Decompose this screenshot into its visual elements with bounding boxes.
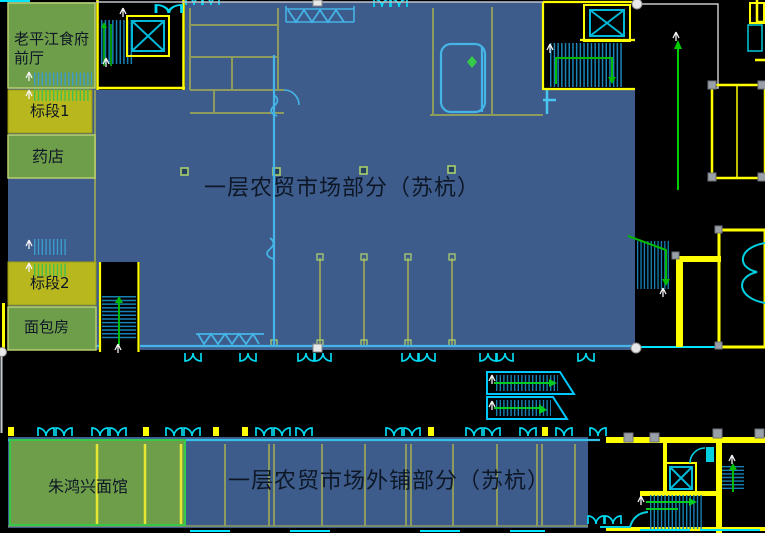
pharmacy-label[interactable]: 药店 bbox=[32, 147, 64, 167]
section2-label[interactable]: 标段2 bbox=[30, 274, 70, 293]
outer-shops-label[interactable]: 一层农贸市场外铺部分（苏杭） bbox=[228, 468, 550, 496]
stairwell-left-mid bbox=[99, 262, 140, 353]
cad-drawing-layer bbox=[0, 0, 765, 533]
stairwell-top-left bbox=[96, 0, 185, 90]
section1-label[interactable]: 标段1 bbox=[30, 102, 70, 121]
floor-plan-canvas: 老平江食府 前厅 标段1 药店 标段2 面包房 一层农贸市场部分（苏杭） 一层农… bbox=[0, 0, 765, 533]
stairwell-top-right bbox=[543, 2, 635, 90]
front-hall-label[interactable]: 老平江食府 前厅 bbox=[14, 30, 89, 68]
noodle-shop-label[interactable]: 朱鸿兴面馆 bbox=[48, 477, 128, 497]
main-market-label[interactable]: 一层农贸市场部分（苏杭） bbox=[204, 175, 480, 203]
bakery-label[interactable]: 面包房 bbox=[24, 318, 69, 337]
